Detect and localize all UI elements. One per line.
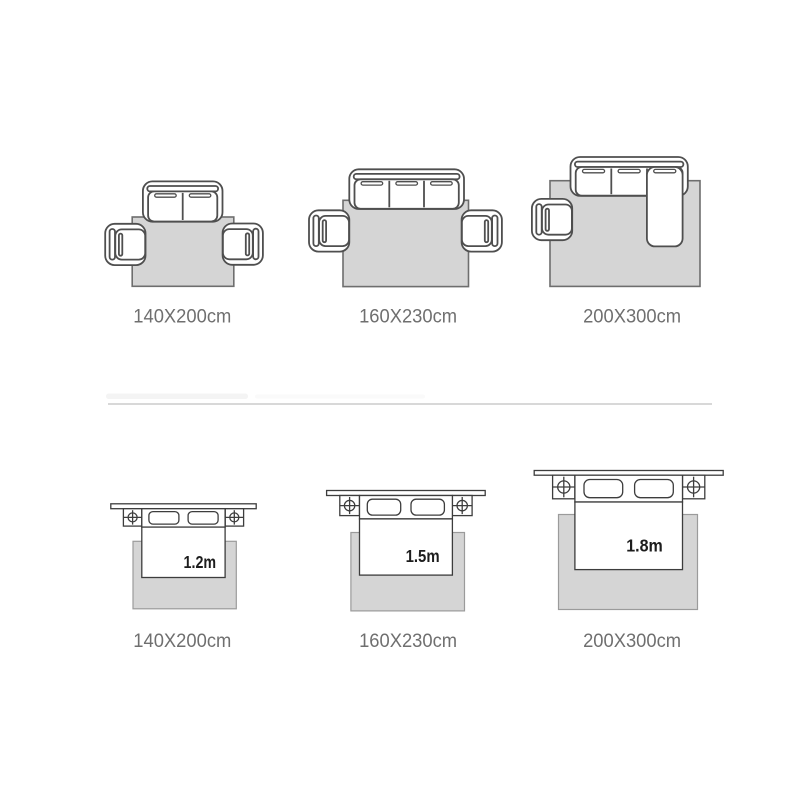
svg-text:140X200cm: 140X200cm <box>133 630 231 652</box>
svg-text:160X230cm: 160X230cm <box>359 305 457 327</box>
svg-text:200X300cm: 200X300cm <box>583 630 681 652</box>
svg-text:1.5m: 1.5m <box>406 546 440 566</box>
svg-text:1.8m: 1.8m <box>626 536 663 556</box>
svg-text:140X200cm: 140X200cm <box>133 305 231 327</box>
svg-text:200X300cm: 200X300cm <box>583 305 681 327</box>
svg-text:1.2m: 1.2m <box>184 552 217 572</box>
svg-text:160X230cm: 160X230cm <box>359 630 457 652</box>
